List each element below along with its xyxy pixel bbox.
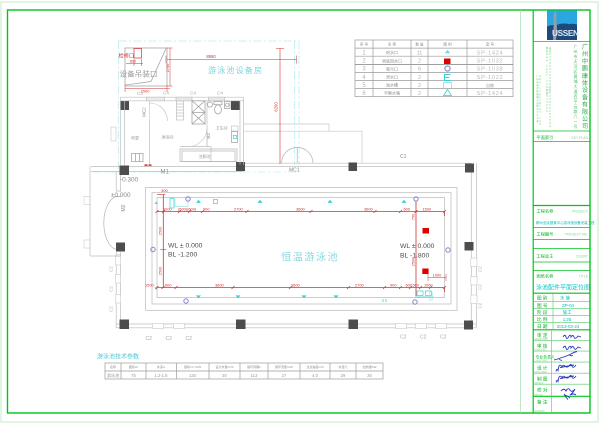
svg-text:120: 120 (189, 373, 197, 378)
svg-text:吸污口: 吸污口 (386, 65, 398, 71)
svg-text:自做: 自做 (486, 82, 494, 88)
svg-text:DESIGNED: DESIGNED (535, 371, 548, 374)
svg-text:600: 600 (404, 206, 411, 211)
svg-text:游泳池设备房: 游泳池设备房 (208, 65, 263, 75)
svg-text:2: 2 (418, 59, 421, 65)
svg-text:淋浴间: 淋浴间 (162, 134, 174, 140)
svg-text:专业负责人: 专业负责人 (536, 354, 556, 359)
svg-text:2700: 2700 (166, 64, 170, 72)
svg-text:900: 900 (390, 282, 397, 287)
svg-text:2500: 2500 (411, 257, 416, 266)
svg-text:600: 600 (165, 282, 172, 287)
svg-text:3600: 3600 (215, 282, 224, 287)
svg-text:C4: C4 (163, 91, 169, 96)
svg-text:广州中鹏康体设备有限公司: 广州中鹏康体设备有限公司 (582, 43, 589, 130)
svg-text:TITLE: TITLE (579, 275, 589, 279)
svg-text:PROJECT: PROJECT (572, 210, 588, 214)
svg-text:M2: M2 (121, 204, 127, 211)
svg-text:卫生间: 卫生间 (216, 125, 228, 131)
svg-text:500: 500 (413, 282, 420, 287)
svg-text:池底回水口: 池底回水口 (382, 57, 402, 63)
svg-text:2: 2 (418, 91, 421, 97)
svg-text:1.2-1.8: 1.2-1.8 (154, 373, 168, 378)
svg-text:ZP-04: ZP-04 (562, 303, 575, 308)
svg-text:1500: 1500 (423, 206, 432, 211)
svg-text:数 量: 数 量 (415, 42, 424, 47)
svg-text:工程编号: 工程编号 (537, 231, 554, 238)
svg-text:PROJECT NO.: PROJECT NO. (565, 233, 588, 237)
svg-text:APPROVED: APPROVED (535, 338, 549, 341)
svg-text:DRAWN: DRAWN (535, 382, 544, 385)
svg-text:PROOF: PROOF (535, 394, 544, 397)
svg-text:水 施: 水 施 (560, 295, 571, 302)
svg-text:男更: 男更 (131, 136, 139, 141)
svg-text:泳池配件平面定位图: 泳池配件平面定位图 (536, 284, 590, 292)
svg-text:900: 900 (203, 206, 210, 211)
svg-text:8950: 8950 (206, 54, 216, 59)
svg-text:WL ± 0.000: WL ± 0.000 (168, 243, 203, 250)
svg-text:27: 27 (282, 373, 287, 378)
svg-text:施工: 施工 (563, 309, 572, 316)
svg-text:KEY PLAN: KEY PLAN (571, 136, 588, 140)
svg-text:游泳池技术参数: 游泳池技术参数 (97, 353, 139, 361)
svg-text:M3: M3 (206, 133, 211, 139)
svg-text:C4: C4 (217, 91, 223, 96)
svg-text:2013-03-24: 2013-03-24 (557, 324, 580, 329)
svg-text:平衡水箱: 平衡水箱 (384, 90, 400, 96)
svg-text:750: 750 (411, 213, 416, 220)
svg-text:C2: C2 (478, 284, 483, 290)
svg-text:名称: 名称 (110, 364, 116, 369)
svg-text:300: 300 (161, 188, 168, 193)
svg-text:2: 2 (418, 75, 421, 81)
svg-text:1000: 1000 (163, 206, 172, 211)
svg-text:给水口: 给水口 (386, 49, 398, 55)
svg-text:郴州全民健身中心游泳馆设备安装工程: 郴州全民健身中心游泳馆设备安装工程 (536, 220, 595, 225)
svg-text:30: 30 (222, 373, 227, 378)
svg-text:WL ± 0.000: WL ± 0.000 (400, 243, 435, 250)
svg-text:3600: 3600 (296, 206, 305, 211)
svg-text:REMARK: REMARK (535, 410, 546, 413)
svg-text:SP-1022: SP-1022 (477, 75, 504, 81)
svg-text:水温℃: 水温℃ (338, 364, 347, 369)
svg-text:C2: C2 (109, 266, 114, 272)
svg-text:检修口: 检修口 (119, 52, 135, 60)
svg-text:2500: 2500 (157, 266, 162, 275)
svg-text:比 例: 比 例 (537, 316, 548, 323)
svg-text:图 例: 图 例 (443, 42, 452, 47)
svg-text:1000: 1000 (433, 273, 442, 278)
svg-text:USSEN: USSEN (552, 28, 579, 38)
svg-text:图纸名称: 图纸名称 (537, 273, 554, 280)
svg-text:设备吊装口: 设备吊装口 (120, 69, 158, 79)
svg-text:加热量KW: 加热量KW (363, 364, 377, 369)
svg-text:设计水量m³/h: 设计水量m³/h (215, 364, 233, 369)
svg-text:1500: 1500 (145, 282, 154, 287)
svg-text:溢水槽: 溢水槽 (386, 82, 398, 88)
svg-text:名 称: 名 称 (388, 42, 397, 47)
svg-text:图 别: 图 别 (537, 295, 548, 302)
svg-text:C2: C2 (186, 336, 193, 342)
svg-text:C1: C1 (400, 154, 407, 160)
svg-text:1000: 1000 (424, 282, 433, 287)
svg-text:C4: C4 (190, 91, 196, 96)
svg-text:泄水口: 泄水口 (386, 74, 398, 80)
svg-text:36: 36 (367, 373, 372, 378)
svg-text:2900: 2900 (141, 88, 151, 93)
svg-text:洗脚池: 洗脚池 (199, 154, 211, 159)
svg-text:C2: C2 (478, 302, 483, 308)
svg-text:SP-1032: SP-1032 (477, 59, 504, 65)
svg-text:75: 75 (131, 373, 136, 378)
svg-text:广州市天河区黄埔大道西平云路六一号: 广州市天河区黄埔大道西平云路六一号 (574, 43, 578, 129)
svg-text:1:25: 1:25 (563, 317, 572, 322)
svg-text:游泳池: 游泳池 (107, 372, 120, 379)
svg-text:循环流量m³/h: 循环流量m³/h (275, 364, 293, 369)
svg-text:SP-1424: SP-1424 (477, 91, 504, 97)
svg-text:C2: C2 (146, 336, 153, 342)
svg-text:恒温游泳池: 恒温游泳池 (281, 251, 339, 264)
svg-text:6200: 6200 (274, 102, 279, 112)
svg-text:校 对: 校 对 (537, 387, 548, 394)
svg-text:M1: M1 (161, 170, 170, 176)
svg-text:容积m³ ≈105: 容积m³ ≈105 (184, 364, 201, 369)
svg-text:113: 113 (251, 373, 258, 378)
svg-text:SP-1038: SP-1038 (477, 67, 504, 73)
svg-text:4.0: 4.0 (312, 373, 318, 378)
svg-text:CLIENT: CLIENT (576, 255, 588, 259)
svg-text:3600: 3600 (291, 282, 300, 287)
svg-text:型 号: 型 号 (486, 42, 495, 47)
svg-text:800: 800 (130, 60, 136, 64)
svg-text:C2: C2 (109, 306, 114, 312)
svg-text:2700: 2700 (234, 206, 243, 211)
svg-text:±0.000: ±0.000 (111, 192, 131, 199)
svg-text:CHECKED: CHECKED (535, 349, 547, 352)
svg-text:MC2: MC2 (142, 107, 147, 117)
svg-text:2700: 2700 (355, 282, 364, 287)
svg-text:11: 11 (417, 51, 423, 57)
svg-text:2500: 2500 (157, 226, 162, 235)
svg-text:29: 29 (341, 373, 346, 378)
svg-text:面积m²: 面积m² (129, 364, 139, 369)
svg-text:C2: C2 (166, 336, 173, 342)
svg-text:水深m: 水深m (157, 364, 166, 369)
svg-text:3600: 3600 (364, 206, 373, 211)
svg-text:6: 6 (418, 67, 421, 73)
svg-text:2: 2 (418, 83, 421, 89)
svg-text:C2: C2 (400, 335, 407, 341)
svg-text:C2: C2 (440, 335, 447, 341)
svg-text:(500)(600): (500)(600) (178, 206, 197, 211)
svg-text:C2: C2 (109, 286, 114, 292)
svg-text:BL -1.200: BL -1.200 (168, 252, 197, 259)
svg-text:平面索引: 平面索引 (537, 134, 554, 141)
svg-text:过滤速度m/h: 过滤速度m/h (306, 364, 323, 369)
svg-text:-0.300: -0.300 (120, 177, 139, 184)
svg-text:C2: C2 (478, 266, 483, 272)
svg-text:MC1: MC1 (289, 168, 300, 174)
svg-text:循环周期h: 循环周期h (247, 364, 261, 369)
svg-text:C2: C2 (420, 335, 427, 341)
svg-text:SP-1424: SP-1424 (477, 51, 504, 57)
svg-text:备 注: 备 注 (537, 399, 548, 406)
svg-text:工程业主: 工程业主 (537, 253, 554, 260)
svg-text:阶 段: 阶 段 (537, 309, 548, 316)
svg-text:工程名称: 工程名称 (537, 208, 554, 215)
svg-text:序 号: 序 号 (360, 42, 369, 47)
svg-text:CHIEF ENG.: CHIEF ENG. (535, 360, 549, 363)
